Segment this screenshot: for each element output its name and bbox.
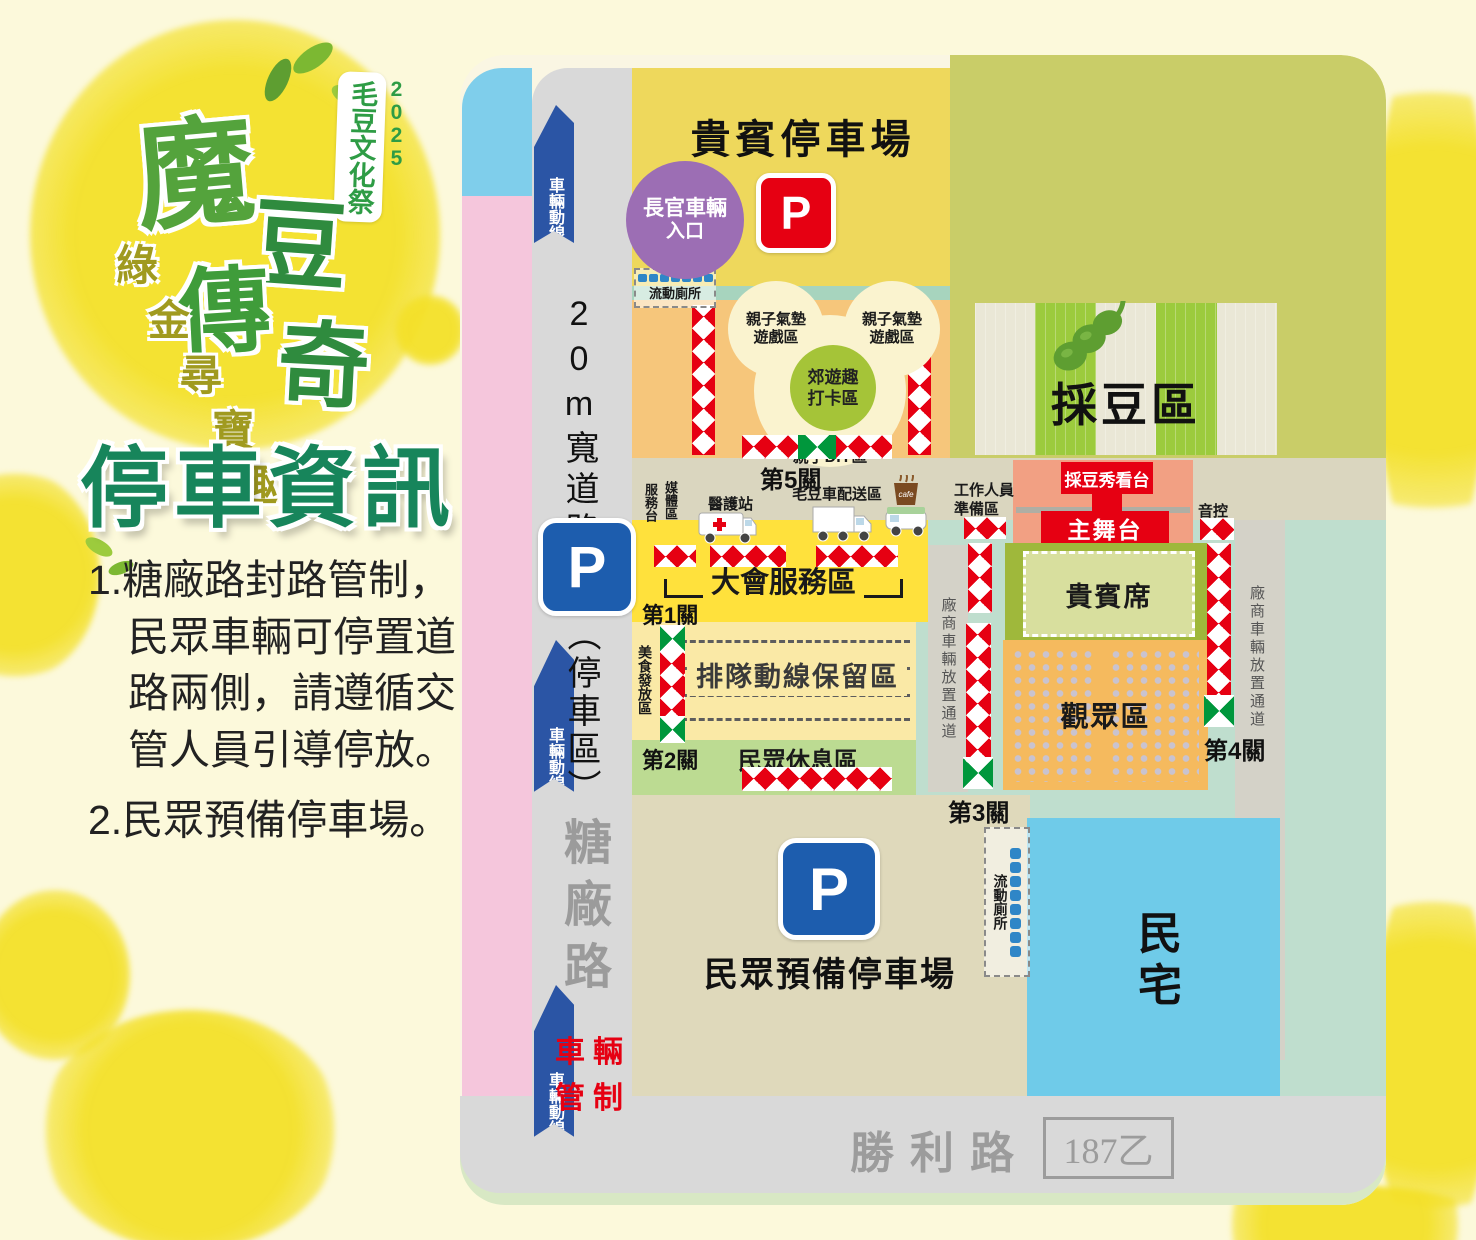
note-2: 2.民眾預備停車場。 xyxy=(88,786,450,846)
parking-zone-label: （停車區） xyxy=(564,617,598,807)
tagline-char: 尋 xyxy=(180,342,222,403)
public-parking-sign: P xyxy=(778,838,880,940)
photo-spot-line2: 打卡區 xyxy=(808,388,859,409)
bounce-label-line1: 親子氣墊 xyxy=(862,311,922,329)
roadside-parking-sign: P xyxy=(538,518,636,616)
watercolor-blob xyxy=(1372,860,1476,1240)
officials-entrance-line2: 入口 xyxy=(666,221,704,243)
service-desk-label: 服務台 xyxy=(644,483,657,522)
photo-spot-line1: 郊遊趣 xyxy=(808,367,859,388)
gate2-label: 第2關 xyxy=(642,743,698,775)
vendor-lane-label: 廠商車輛放置通道 xyxy=(1249,585,1264,729)
route-number-badge: 187乙 xyxy=(1043,1117,1174,1179)
vip-lot-title: 貴賓停車場 xyxy=(672,107,934,165)
delivery-truck-icon xyxy=(812,505,876,543)
vendor-lane-label: 廠商車輛放置通道 xyxy=(941,597,956,741)
victory-road-label: 勝利路 xyxy=(850,1117,1030,1181)
control-char: 輛 xyxy=(592,1027,624,1071)
note-1-line: 民眾車輛可停置道 xyxy=(128,609,456,666)
vendor-lane-left: 廠商車輛放置通道 xyxy=(928,545,968,792)
cafe-truck-icon: cafe xyxy=(884,475,934,543)
staff-prep-line1: 工作人員 xyxy=(954,482,1014,501)
page-title: 停車資訊 xyxy=(80,418,456,545)
logo-char-1: 魔 xyxy=(128,73,260,254)
sugar-road-label: 糖廠路 xyxy=(558,817,606,1003)
vip-parking-sign: P xyxy=(756,173,836,253)
audience-label: 觀眾區 xyxy=(1003,695,1208,735)
bean-show-stand-label: 採豆秀看台 xyxy=(1065,466,1150,491)
edamame-pod-icon xyxy=(1035,301,1147,375)
barrier xyxy=(654,545,696,567)
bounce-label-line2: 遊戲區 xyxy=(753,329,798,347)
note-1-line: 管人員引導停放。 xyxy=(128,722,456,779)
p-letter: P xyxy=(781,186,812,240)
bracket-end xyxy=(864,579,903,598)
officials-entrance-line1: 長官車輛 xyxy=(643,197,727,221)
venue-map: 車輛動線 車輛動線 車輛動線 20m寬道路 P （停車區） 糖廠路 車 輛 管 … xyxy=(460,55,1386,1205)
gate4-checkpoint xyxy=(1204,695,1234,727)
checkpoint-marker xyxy=(660,625,685,652)
barrier xyxy=(964,517,1006,539)
officials-entrance: 長官車輛 入口 xyxy=(626,161,744,279)
toilet-label: 流動廁所 xyxy=(994,874,1008,930)
barrier xyxy=(742,767,892,791)
p-letter: P xyxy=(809,855,849,924)
event-service-label: 大會服務區 xyxy=(711,569,856,598)
photo-spot-circle: 郊遊趣 打卡區 xyxy=(790,345,876,431)
bracket-end xyxy=(664,579,703,598)
barrier xyxy=(966,623,991,757)
queue-dash-line xyxy=(672,718,910,721)
gate4-label: 第4關 xyxy=(1204,731,1265,766)
barrier xyxy=(816,545,898,567)
tagline-char: 綠 xyxy=(116,232,158,293)
media-zone-label: 媒體區 xyxy=(664,481,677,520)
control-char: 制 xyxy=(592,1073,624,1117)
residential-area: 民宅 xyxy=(1027,818,1280,1096)
p-letter: P xyxy=(568,534,607,601)
vip-seats-label: 貴賓席 xyxy=(1066,575,1153,614)
barrier xyxy=(836,435,892,459)
watercolor-blob xyxy=(40,1010,340,1240)
queue-zone-label: 排隊動線保留區 xyxy=(688,653,907,696)
barrier xyxy=(660,652,685,716)
note-1-line: 路兩側，請遵循交 xyxy=(128,665,456,722)
barrier xyxy=(742,435,798,459)
wide-road-label: 20m寬道路 xyxy=(562,295,596,553)
toilet-units xyxy=(1010,848,1021,957)
pink-roadside-strip xyxy=(462,196,532,1096)
control-char: 管 xyxy=(554,1073,586,1117)
food-zone-barrier xyxy=(660,625,685,743)
main-stage: 主舞台 xyxy=(1041,511,1169,545)
event-service-bracket: 大會服務區 xyxy=(664,569,903,598)
ambulance-icon xyxy=(698,509,758,545)
barrier xyxy=(710,545,786,567)
gate3-checkpoint xyxy=(963,757,993,789)
control-char: 車 xyxy=(554,1027,586,1071)
tagline-char: 金 xyxy=(148,287,190,348)
checkpoint-marker xyxy=(798,435,836,459)
route-number: 187乙 xyxy=(1063,1122,1153,1174)
blue-roadside-strip xyxy=(462,68,532,196)
barrier xyxy=(1200,518,1234,540)
main-stage-label: 主舞台 xyxy=(1068,511,1143,545)
vehicle-control-label: 車 輛 管 制 xyxy=(554,1027,624,1117)
svg-text:cafe: cafe xyxy=(898,490,914,499)
gate3-label: 第3關 xyxy=(948,793,1009,828)
food-zone-label: 美食發放區 xyxy=(638,645,652,715)
note-1-line: 1.糖廠路封路管制， xyxy=(88,552,456,609)
residential-label: 民宅 xyxy=(1133,910,1177,1014)
bean-zone-label: 採豆區 xyxy=(975,369,1277,435)
public-lot-label: 民眾預備停車場 xyxy=(690,947,970,996)
toilet-label: 流動廁所 xyxy=(649,283,701,302)
barrier xyxy=(692,305,715,455)
bounce-label-line1: 親子氣墊 xyxy=(746,311,806,329)
queue-dash-line xyxy=(672,640,910,643)
bounce-label-line2: 遊戲區 xyxy=(869,329,914,347)
vip-seats: 貴賓席 xyxy=(1023,551,1195,637)
edamame-truck-label: 毛豆車配送區 xyxy=(792,483,882,504)
audience-zone: 觀眾區 xyxy=(1003,640,1208,790)
bean-show-stand: 採豆秀看台 xyxy=(1061,462,1153,494)
watercolor-blob xyxy=(1372,30,1476,570)
barrier xyxy=(1207,543,1231,695)
festival-year: 2025 xyxy=(386,78,407,170)
staff-prep-label: 工作人員 準備區 xyxy=(954,482,1014,520)
watercolor-blob xyxy=(395,295,465,365)
poster: 毛豆文化祭 2025 魔 豆 傳 奇 綠 金 尋 寶 趣 停車資訊 1.糖廠路封… xyxy=(0,0,1476,1240)
barrier xyxy=(968,543,992,613)
note-1: 1.糖廠路封路管制， 民眾車輛可停置道 路兩側，請遵循交 管人員引導停放。 xyxy=(88,552,456,778)
checkpoint-marker xyxy=(660,716,685,743)
logo-char-4: 奇 xyxy=(275,290,374,428)
portable-toilet-bottom: 流動廁所 xyxy=(984,827,1030,977)
gate5-barrier xyxy=(742,435,892,459)
